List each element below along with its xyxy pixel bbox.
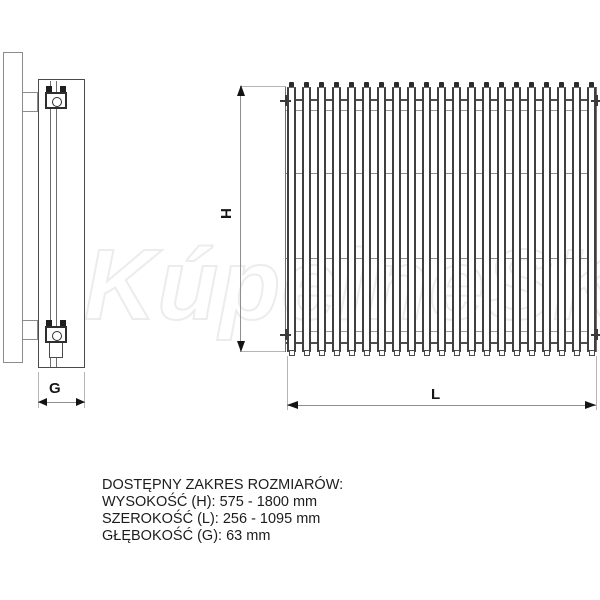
radiator-tube [287,87,296,352]
size-range-width: SZEROKOŚĆ (L): 256 - 1095 mm [102,511,343,528]
radiator-tube [542,87,551,352]
radiator-tube [377,87,386,352]
tick-cross [280,95,291,106]
radiator-left-edge [285,87,286,352]
h-extension-line-top [241,86,286,87]
g-arrow-right [76,398,85,406]
tick-cross [591,329,600,340]
l-arrow-left [287,401,298,409]
h-dimension-line [240,86,241,352]
size-range-block: DOSTĘPNY ZAKRES ROZMIARÓW: WYSOKOŚĆ (H):… [102,477,343,545]
l-extension-line-right [596,356,597,410]
h-arrow-down [237,341,245,352]
radiator-tube [407,87,416,352]
radiator-tube [497,87,506,352]
wall-bracket-top [22,92,38,112]
h-extension-line-bottom [241,351,286,352]
l-arrow-right [585,401,596,409]
height-label: H [217,208,234,219]
hanger-rail-line [56,81,57,367]
l-dimension-line [287,405,596,406]
size-range-depth: GŁĘBOKOŚĆ (G): 63 mm [102,528,343,545]
radiator-tube [332,87,341,352]
radiator-tube [587,87,596,352]
radiator-tube [317,87,326,352]
size-range-height: WYSOKOŚĆ (H): 575 - 1800 mm [102,494,343,511]
g-arrow-left [38,398,47,406]
mounting-clamp-bottom [45,326,67,343]
depth-label: G [49,380,61,397]
radiator-tube [392,87,401,352]
radiator-tube [452,87,461,352]
radiator-tube [302,87,311,352]
radiator-dimension-drawing: KúpelneSK G H [0,0,600,600]
clamp-screw-hole [52,97,62,107]
clamp-screw-hole [52,331,62,341]
mounting-clamp-top [45,92,67,109]
radiator-tube [437,87,446,352]
bottom-connector [49,343,63,358]
h-arrow-up [237,85,245,96]
radiator-tube [527,87,536,352]
wall-profile [3,52,23,363]
radiator-tube [572,87,581,352]
radiator-tube [347,87,356,352]
radiator-right-edge [596,87,597,352]
watermark-text: KúpelneSK [84,228,600,343]
radiator-tube [557,87,566,352]
wall-bracket-bottom [22,320,38,340]
tick-cross [280,329,291,340]
radiator-tube [482,87,491,352]
radiator-tube [467,87,476,352]
radiator-tube [422,87,431,352]
size-range-title: DOSTĘPNY ZAKRES ROZMIARÓW: [102,477,343,494]
tick-cross [591,95,600,106]
radiator-tube [512,87,521,352]
width-label: L [431,386,440,403]
radiator-tube [362,87,371,352]
